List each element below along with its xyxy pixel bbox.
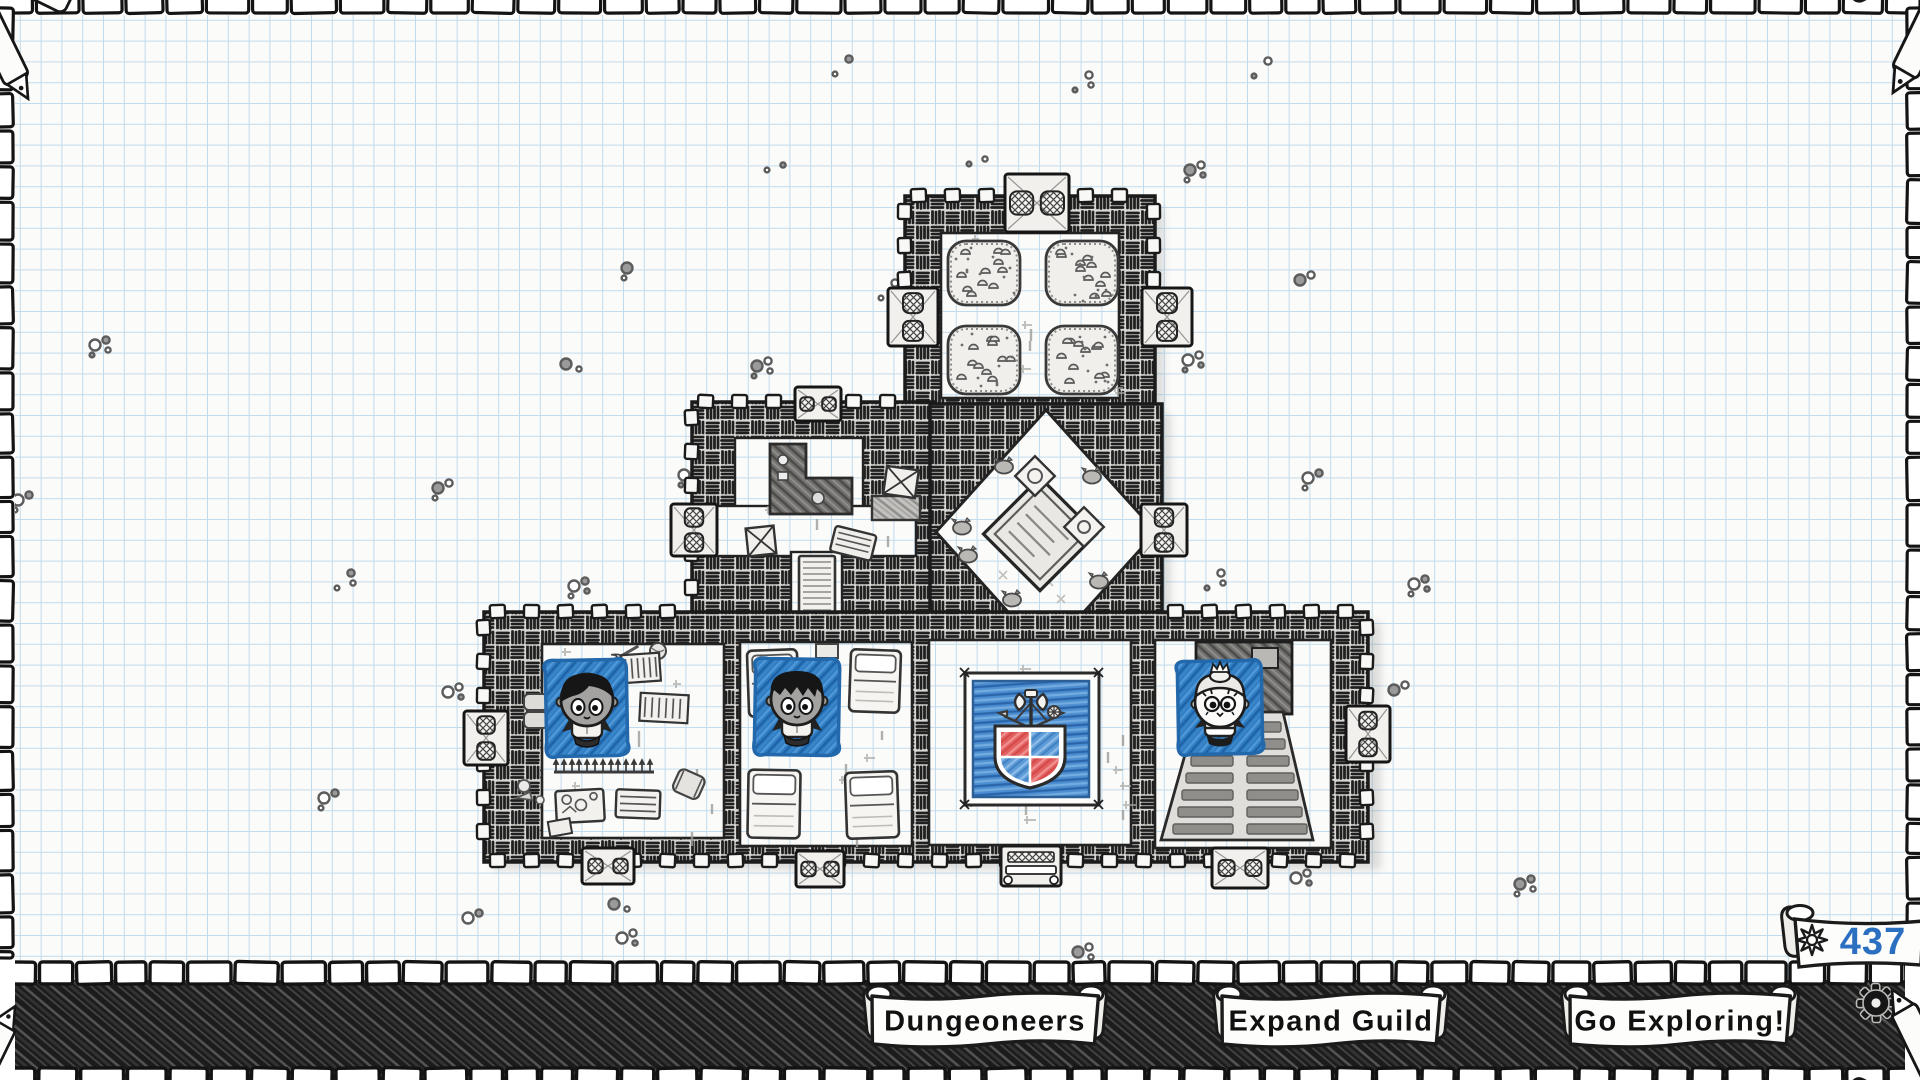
- svg-text:Expand Guild: Expand Guild: [1229, 1005, 1434, 1037]
- svg-text:Dungeoneers: Dungeoneers: [884, 1005, 1086, 1037]
- svg-text:Go Exploring!: Go Exploring!: [1574, 1005, 1785, 1037]
- svg-text:437: 437: [1840, 921, 1906, 963]
